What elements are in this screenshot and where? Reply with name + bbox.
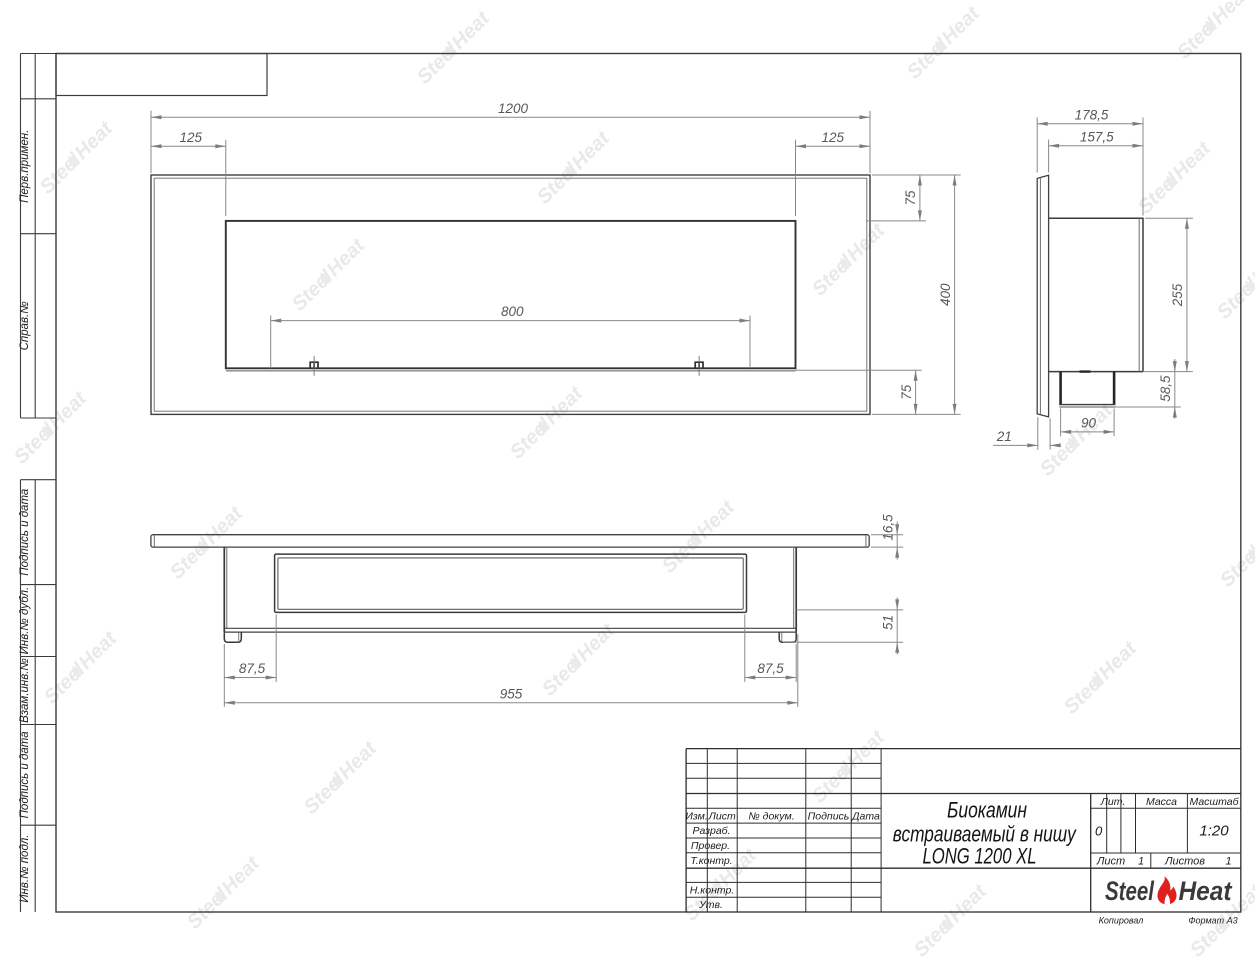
svg-text:Heat: Heat	[1179, 876, 1233, 906]
svg-text:Steel: Steel	[1105, 876, 1154, 906]
svg-text:Лист: Лист	[708, 810, 736, 822]
svg-text:Масса: Масса	[1146, 796, 1177, 808]
svg-text:75: 75	[903, 190, 918, 206]
svg-text:1: 1	[1225, 856, 1231, 868]
svg-text:87,5: 87,5	[757, 661, 784, 676]
svg-text:Копировал: Копировал	[1099, 916, 1144, 926]
svg-text:Инв.№ подл.: Инв.№ подл.	[19, 835, 31, 903]
svg-text:Провер.: Провер.	[691, 840, 730, 852]
svg-text:16,5: 16,5	[881, 514, 896, 541]
svg-text:255: 255	[1170, 283, 1185, 307]
svg-text:955: 955	[500, 686, 523, 701]
svg-text:58,5: 58,5	[1158, 375, 1173, 402]
svg-text:1:20: 1:20	[1199, 823, 1229, 840]
svg-text:800: 800	[501, 304, 524, 319]
svg-text:№ докум.: № докум.	[748, 810, 794, 822]
svg-text:Биокамин: Биокамин	[947, 798, 1027, 823]
svg-text:125: 125	[822, 130, 845, 145]
svg-text:Листов: Листов	[1164, 856, 1205, 868]
svg-text:LONG 1200 XL: LONG 1200 XL	[923, 844, 1037, 869]
svg-text:1: 1	[1138, 856, 1144, 868]
svg-text:Подпись: Подпись	[808, 810, 850, 822]
svg-text:Н.контр.: Н.контр.	[690, 884, 734, 896]
svg-text:Подпись и дата: Подпись и дата	[19, 489, 31, 576]
svg-text:Разраб.: Разраб.	[693, 825, 731, 837]
svg-text:Лит.: Лит.	[1100, 796, 1126, 808]
svg-text:Т.контр.: Т.контр.	[690, 855, 732, 867]
svg-text:Инв.№ дубл.: Инв.№ дубл.	[19, 587, 31, 655]
svg-text:0: 0	[1095, 824, 1103, 839]
svg-text:Взам.инв.№: Взам.инв.№	[19, 658, 31, 723]
svg-text:75: 75	[899, 384, 914, 400]
svg-text:Формат А3: Формат А3	[1188, 916, 1237, 926]
svg-text:Масштаб: Масштаб	[1189, 796, 1239, 808]
svg-text:87,5: 87,5	[239, 661, 266, 676]
svg-text:Перв.примен.: Перв.примен.	[19, 130, 31, 203]
svg-text:90: 90	[1081, 416, 1097, 431]
svg-text:125: 125	[180, 130, 203, 145]
svg-text:Изм.: Изм.	[685, 810, 707, 822]
svg-text:21: 21	[996, 429, 1012, 444]
svg-text:400: 400	[938, 283, 953, 306]
svg-text:Подпись и дата: Подпись и дата	[19, 731, 31, 818]
svg-text:157,5: 157,5	[1080, 129, 1114, 144]
svg-text:178,5: 178,5	[1075, 107, 1109, 122]
svg-text:Дата: Дата	[851, 810, 880, 822]
svg-text:Утв.: Утв.	[698, 899, 723, 911]
svg-text:51: 51	[881, 615, 896, 630]
svg-text:Лист: Лист	[1096, 856, 1125, 868]
svg-text:Справ.№: Справ.№	[19, 301, 31, 351]
svg-text:1200: 1200	[498, 101, 529, 116]
